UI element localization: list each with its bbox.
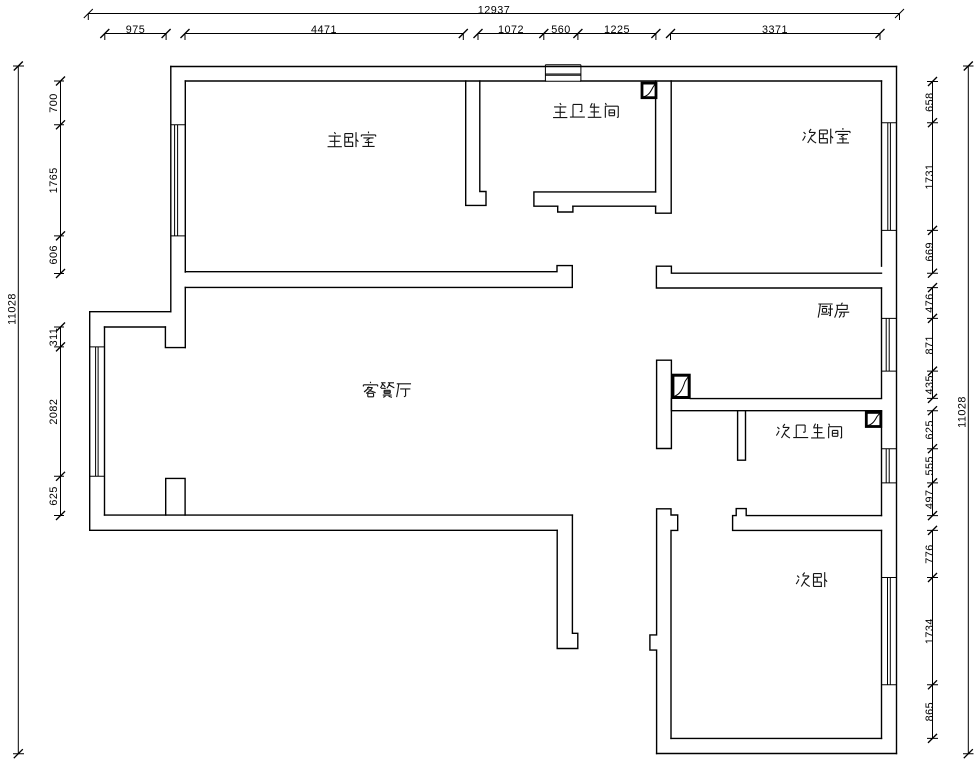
svg-text:625: 625 (48, 486, 60, 506)
svg-text:871: 871 (924, 335, 936, 355)
svg-text:865: 865 (924, 702, 936, 722)
svg-text:3371: 3371 (762, 24, 788, 36)
svg-text:12937: 12937 (478, 4, 511, 16)
svg-text:497: 497 (924, 489, 936, 509)
svg-text:311: 311 (48, 328, 60, 347)
svg-text:669: 669 (924, 242, 936, 262)
svg-text:1765: 1765 (48, 167, 60, 193)
svg-text:975: 975 (126, 24, 146, 36)
svg-text:658: 658 (924, 92, 936, 112)
svg-text:435: 435 (924, 375, 936, 395)
svg-text:555: 555 (924, 456, 936, 476)
svg-text:560: 560 (551, 24, 571, 36)
svg-text:1072: 1072 (498, 24, 524, 36)
svg-text:11028: 11028 (957, 396, 969, 428)
svg-text:2082: 2082 (48, 399, 60, 425)
svg-text:4471: 4471 (311, 24, 337, 36)
svg-text:1734: 1734 (924, 618, 936, 644)
svg-text:606: 606 (48, 245, 60, 265)
svg-text:625: 625 (924, 420, 936, 440)
svg-text:1225: 1225 (604, 24, 630, 36)
svg-text:11028: 11028 (7, 293, 19, 325)
svg-text:1731: 1731 (924, 163, 936, 189)
svg-text:776: 776 (924, 544, 936, 564)
svg-text:700: 700 (48, 93, 60, 113)
svg-text:476: 476 (924, 293, 936, 313)
